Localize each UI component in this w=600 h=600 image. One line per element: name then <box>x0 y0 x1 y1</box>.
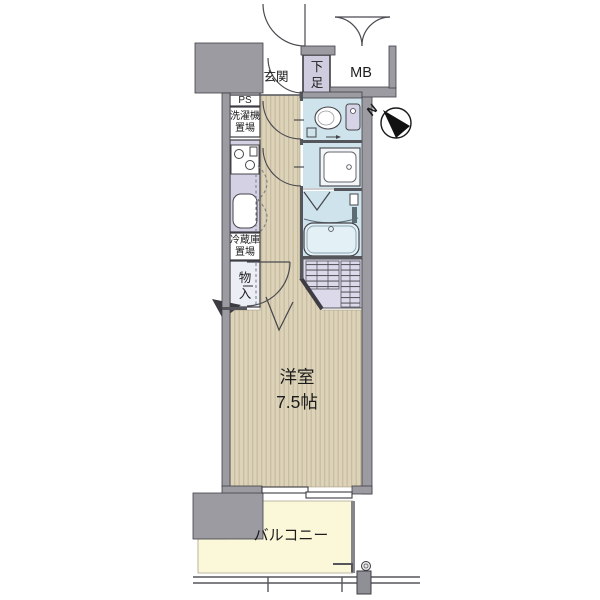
wall-above-shoe <box>301 46 335 55</box>
wall-mb-right <box>389 46 396 88</box>
wall-left <box>222 93 230 487</box>
western-room-name: 洋室 <box>280 367 315 387</box>
wall-right <box>362 92 372 494</box>
floor-plan-drawing: 玄関 下 足 MB PS 洗濯機 置場 冷蔵庫 置場 物 入 洋室 7.5帖 バ… <box>0 0 600 600</box>
partition-bath-storage <box>303 256 362 259</box>
balcony-right-wall <box>351 501 355 573</box>
washer-label-line1: 洗濯機 <box>230 109 260 122</box>
sliding-window-panel <box>306 492 352 498</box>
closet-label-bottom: 入 <box>239 287 252 301</box>
drain-cap <box>362 562 371 571</box>
shoe-label-top: 下 <box>311 60 324 74</box>
floor-plan-canvas: 玄関 下 足 MB PS 洗濯機 置場 冷蔵庫 置場 物 入 洋室 7.5帖 バ… <box>0 0 600 600</box>
toilet-flush-handle <box>351 109 356 114</box>
ps-label: PS <box>238 95 252 106</box>
drain-box <box>357 571 371 594</box>
entrance-door-swing <box>263 4 305 46</box>
bathtub <box>304 223 359 256</box>
partition-under-closet <box>222 307 247 310</box>
toilet-bowl <box>315 107 341 129</box>
wall-bottom-right-seg <box>352 486 372 494</box>
wall-block-bottom-left <box>193 493 263 539</box>
storage-shelf-hatch-right <box>341 261 360 307</box>
mb-door-swing-right <box>362 17 390 46</box>
partition-hall-right <box>300 139 303 145</box>
shower-panel <box>350 194 358 205</box>
mb-door-swing-left <box>335 17 362 46</box>
balcony-label: バルコニー <box>254 527 329 544</box>
sliding-window-panel <box>262 487 308 493</box>
wall-block-top-left <box>195 43 263 93</box>
mb-label: MB <box>350 65 372 81</box>
fridge-label-line1: 冷蔵庫 <box>230 233 260 246</box>
shower-bar <box>352 207 357 223</box>
entrance-label: 玄関 <box>263 69 288 84</box>
shoe-label-bottom: 足 <box>311 76 324 90</box>
kitchen-sink <box>233 194 257 228</box>
washer-label-line2: 置場 <box>235 121 255 134</box>
closet-label-top: 物 <box>239 271 252 285</box>
wall-toilet-top <box>300 92 362 98</box>
toilet-tank <box>346 104 360 130</box>
partition-hall-right <box>300 186 303 279</box>
western-room-size: 7.5帖 <box>276 392 318 412</box>
fridge-label-line2: 置場 <box>235 245 255 258</box>
partition-toilet-vanity <box>303 140 362 143</box>
storage-shelf-hatch-left <box>306 261 339 289</box>
partition-vanity-bath <box>334 188 362 191</box>
stove-unit <box>231 145 259 174</box>
